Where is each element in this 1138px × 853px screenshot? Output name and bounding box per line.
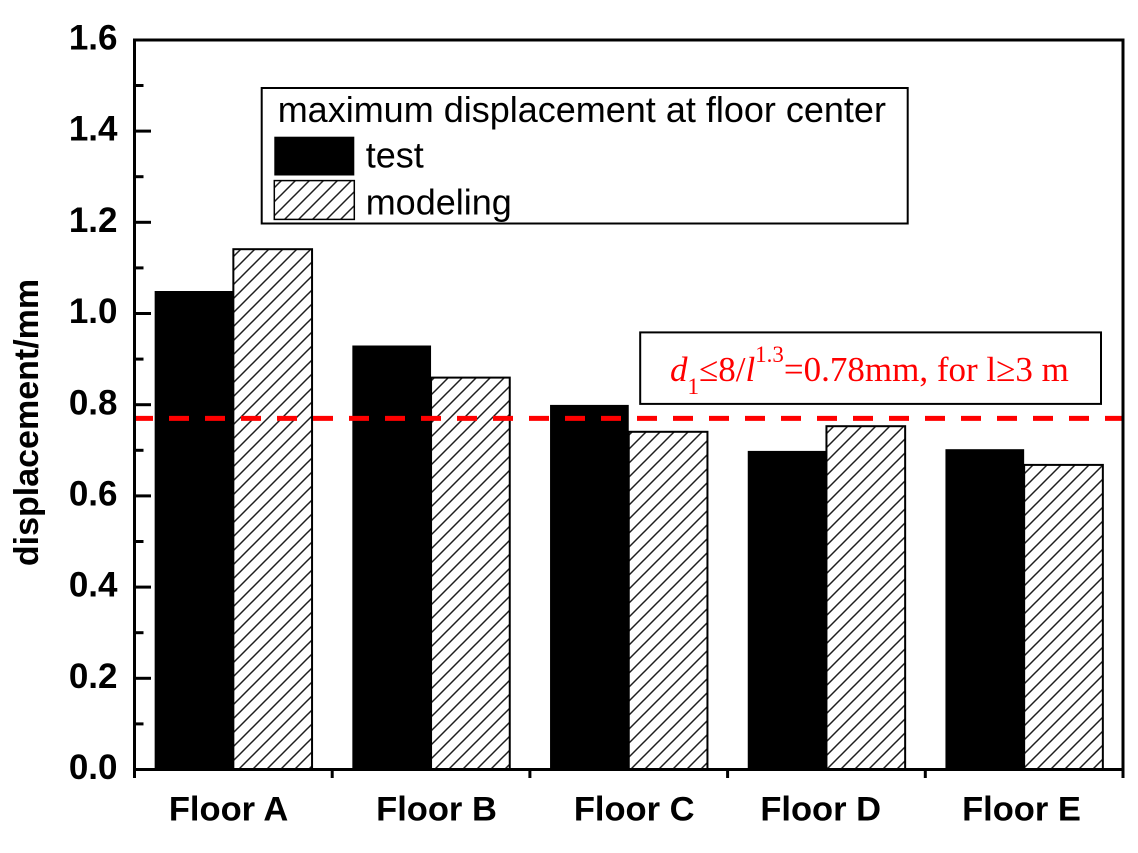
svg-text:modeling: modeling [366, 181, 512, 222]
svg-text:displacement/mm: displacement/mm [8, 279, 46, 566]
svg-text:1.2: 1.2 [69, 201, 118, 240]
svg-text:Floor A: Floor A [169, 790, 288, 828]
svg-text:0.8: 0.8 [69, 383, 118, 422]
svg-text:0.0: 0.0 [69, 748, 118, 787]
svg-text:1.4: 1.4 [69, 110, 118, 149]
svg-text:Floor C: Floor C [574, 790, 695, 828]
svg-text:Floor D: Floor D [760, 790, 881, 828]
svg-text:test: test [366, 135, 424, 176]
svg-text:0.6: 0.6 [69, 475, 118, 514]
svg-text:1.6: 1.6 [69, 19, 118, 58]
svg-text:maximum displacement at floor: maximum displacement at floor center [278, 89, 886, 130]
svg-text:Floor E: Floor E [962, 790, 1081, 828]
svg-text:0.4: 0.4 [69, 566, 118, 605]
svg-text:0.2: 0.2 [69, 657, 118, 696]
svg-text:1.0: 1.0 [69, 292, 118, 331]
svg-text:Floor B: Floor B [376, 790, 497, 828]
